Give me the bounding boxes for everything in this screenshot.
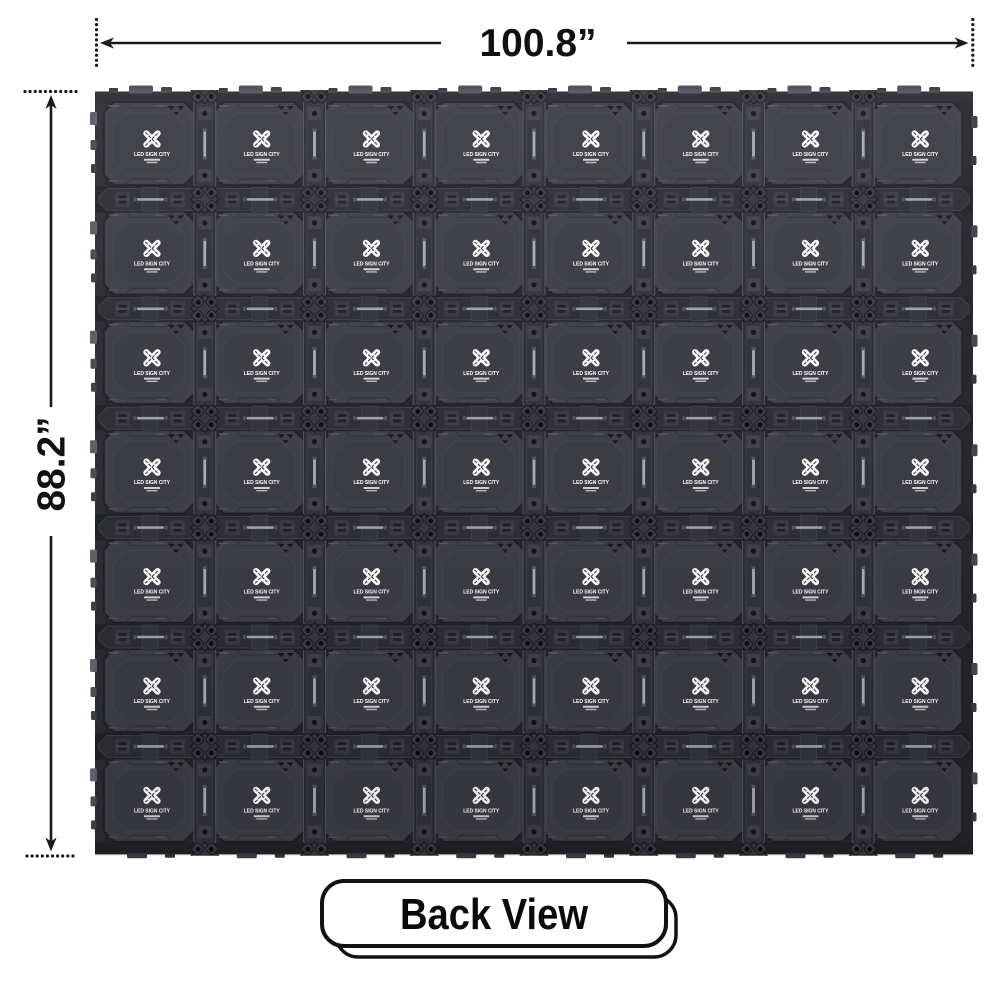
svg-text:88.2”: 88.2”: [31, 417, 74, 512]
svg-text:100.8”: 100.8”: [480, 22, 597, 65]
svg-text:Back View: Back View: [400, 890, 589, 939]
